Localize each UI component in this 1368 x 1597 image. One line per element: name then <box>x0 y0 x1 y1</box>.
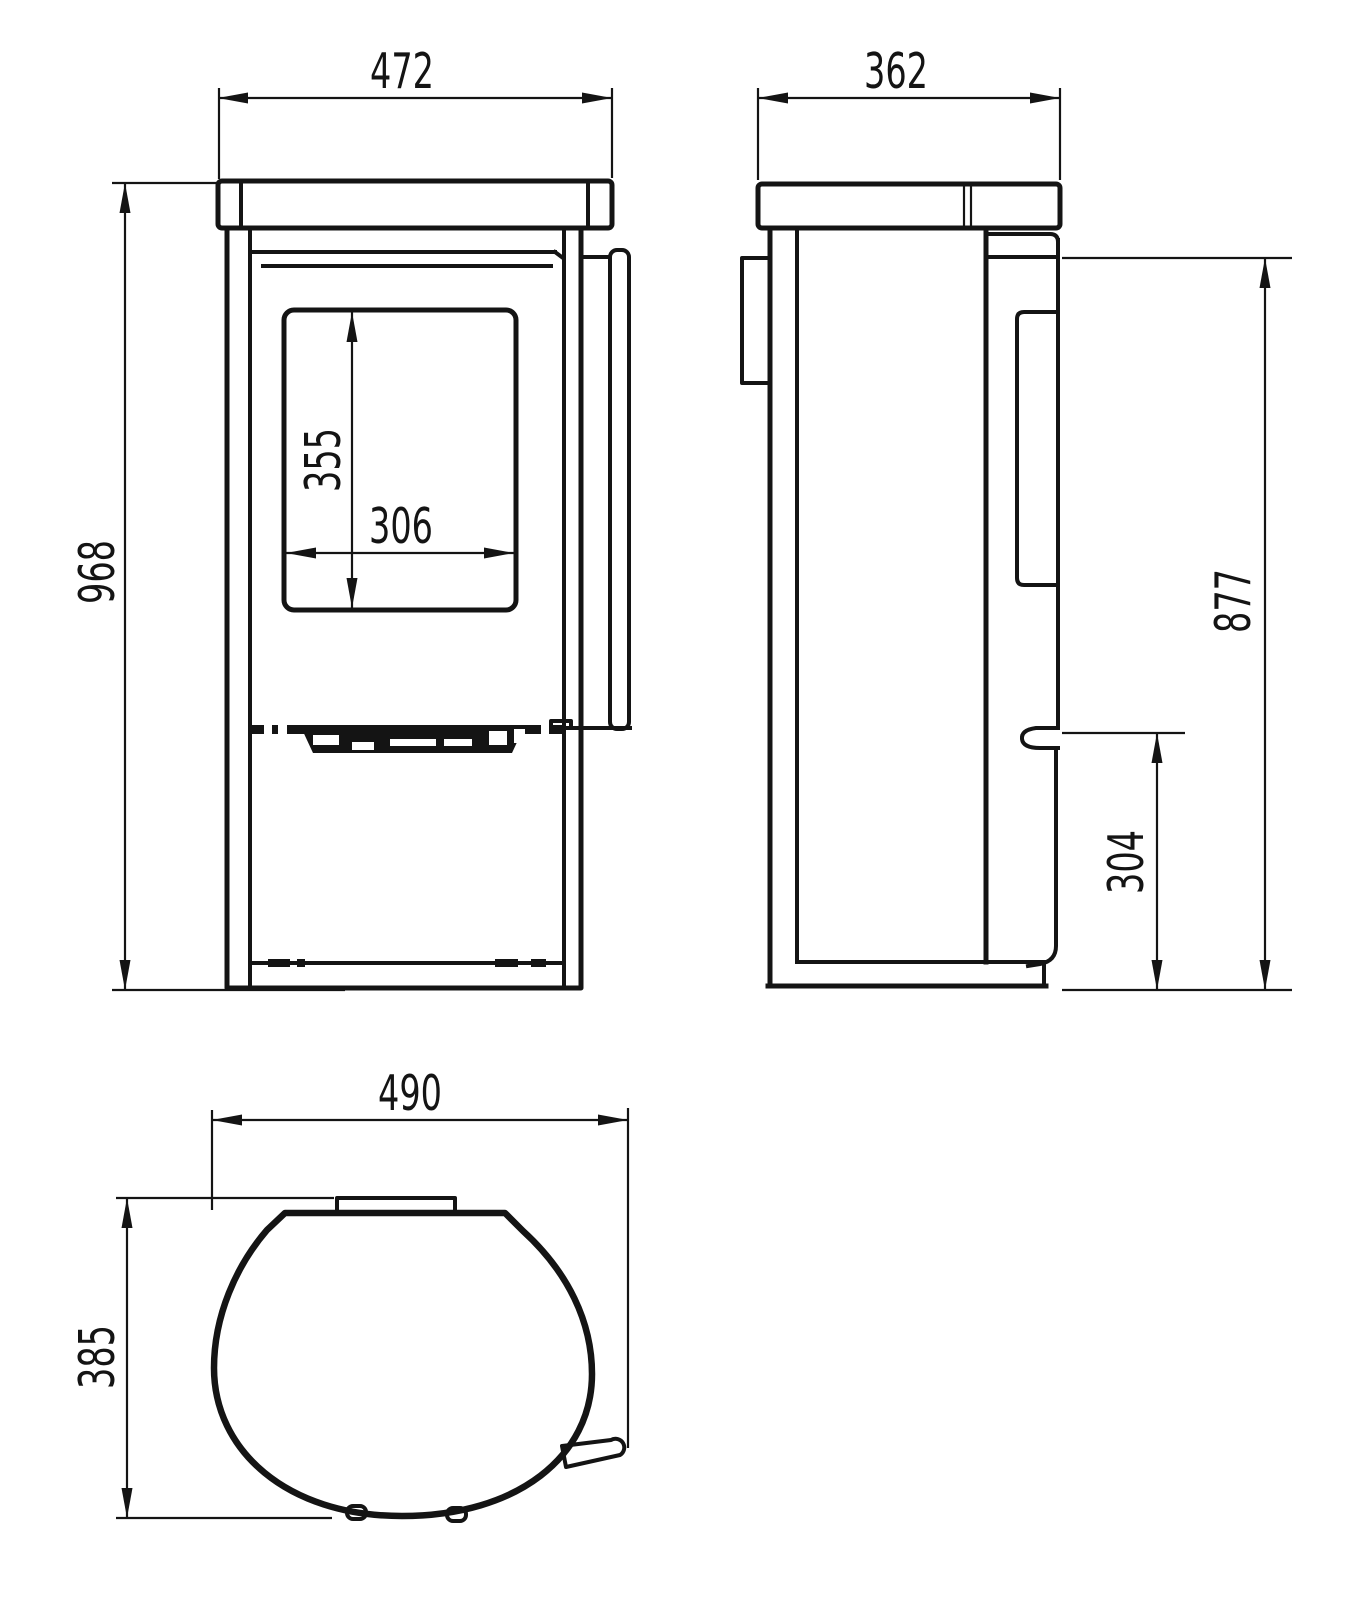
arrowhead-right <box>582 93 612 104</box>
band-slot <box>444 739 472 746</box>
arrowhead-left <box>286 548 316 559</box>
dim-front-glass-height: 355 <box>295 312 358 608</box>
arrowhead-left <box>758 93 788 104</box>
dim-top-width-value: 490 <box>378 1065 442 1122</box>
dim-front-overall-width: 472 <box>218 43 612 179</box>
arrowhead-bottom <box>120 960 131 990</box>
arrowhead-bottom <box>1260 960 1271 990</box>
arrowhead-right <box>598 1115 628 1126</box>
side-door-recess-groove <box>1017 312 1058 585</box>
band-slot <box>352 742 374 750</box>
side-top-plate <box>758 184 1060 228</box>
drawing-canvas: 472 968 355 306 <box>0 0 1368 1597</box>
side-lower-panel-edge <box>1028 752 1056 966</box>
side-door-handle-lip <box>1022 728 1058 748</box>
side-view: 362 877 304 <box>742 43 1292 990</box>
band-gap <box>541 723 549 736</box>
dim-front-glass-height-value: 355 <box>295 428 352 492</box>
dim-side-body-height-value: 877 <box>1205 569 1262 633</box>
arrowhead-top <box>122 1198 133 1228</box>
arrowhead-bottom <box>1152 960 1163 990</box>
arrowhead-left <box>218 93 248 104</box>
top-view: 490 385 <box>69 1065 628 1521</box>
front-air-control-band <box>250 721 630 753</box>
arrowhead-top <box>1260 258 1271 288</box>
band-gap <box>264 723 272 736</box>
side-door-top-cap <box>986 234 1058 257</box>
band-gap <box>278 723 287 736</box>
dim-front-overall-height-value: 968 <box>69 540 126 604</box>
band-slot <box>489 731 507 745</box>
dim-side-depth: 362 <box>758 43 1060 180</box>
front-face-top-step <box>555 252 563 258</box>
dim-front-overall-width-value: 472 <box>370 43 434 100</box>
dim-top-width: 490 <box>212 1065 628 1448</box>
band-slot <box>390 739 436 746</box>
dim-side-body-height: 877 <box>1062 258 1292 990</box>
arrowhead-left <box>212 1115 242 1126</box>
front-view: 472 968 355 306 <box>69 43 630 990</box>
dim-front-glass-width: 306 <box>286 498 514 559</box>
front-door-handle-bar <box>610 250 629 729</box>
arrowhead-top <box>347 312 358 342</box>
arrowhead-right <box>1030 93 1060 104</box>
dim-side-depth-value: 362 <box>864 43 928 100</box>
arrowhead-right <box>484 548 514 559</box>
top-door-handle-hook <box>562 1439 624 1467</box>
dim-front-overall-height: 968 <box>69 183 345 990</box>
arrowhead-top <box>1152 733 1163 763</box>
band-slot <box>514 729 525 743</box>
side-flue-outlet-tab <box>742 258 770 383</box>
dim-top-depth-value: 385 <box>69 1325 126 1389</box>
top-body-outline <box>214 1213 592 1516</box>
dim-side-handle-height-value: 304 <box>1098 830 1155 894</box>
arrowhead-top <box>120 183 131 213</box>
stove-dimension-drawing: 472 968 355 306 <box>0 0 1368 1597</box>
front-top-plate <box>218 181 612 228</box>
arrowhead-bottom <box>122 1488 133 1518</box>
dim-side-handle-height: 304 <box>1062 733 1185 990</box>
arrowhead-bottom <box>347 578 358 608</box>
band-slot <box>313 735 339 745</box>
dim-top-depth: 385 <box>69 1198 334 1518</box>
dim-front-glass-width-value: 306 <box>369 498 433 555</box>
